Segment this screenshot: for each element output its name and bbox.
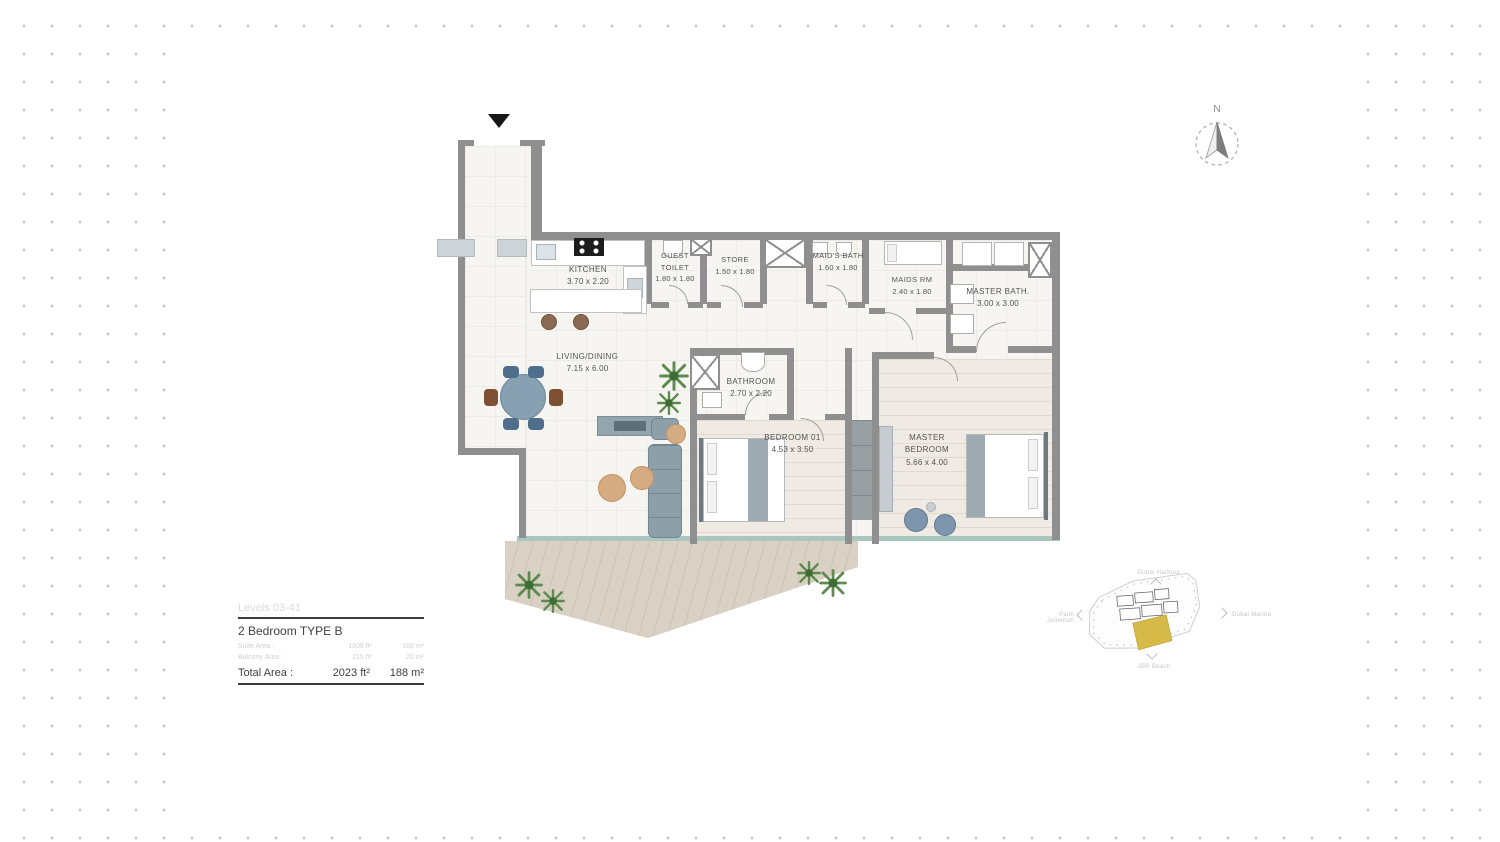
suite-area-row: Suite Area : 1808 ft² 168 m²	[238, 642, 424, 653]
room-dims: 2.40 x 1.80	[878, 286, 946, 298]
balcony-glass-rail	[517, 536, 1060, 541]
suite-area-label: Suite Area :	[238, 642, 310, 653]
total-area-m: 188 m²	[370, 667, 424, 679]
wall	[848, 302, 865, 308]
room-name: BATHROOM	[727, 377, 776, 386]
vanity-sink	[950, 314, 974, 334]
wall	[744, 302, 763, 308]
room-label-bedroom-01: BEDROOM 01 4.53 x 3.50	[745, 432, 840, 457]
room-label-maids-bath: MAID'S BATH 1.60 x 1.80	[812, 250, 864, 273]
room-label-store: STORE 1.50 x 1.80	[709, 254, 761, 277]
wall	[845, 348, 852, 544]
maids-bed-pillow	[887, 244, 897, 262]
room-dims: 3.70 x 2.20	[538, 276, 638, 288]
wall	[651, 302, 669, 308]
side-table	[926, 502, 936, 512]
compass-north-label: N	[1213, 104, 1220, 115]
suite-area-ft: 1808 ft²	[310, 642, 372, 653]
wall	[1052, 240, 1060, 540]
wall	[697, 414, 745, 420]
room-label-kitchen: KITCHEN 3.70 x 2.20	[538, 264, 638, 289]
building-locator: Dubai Harbour Palm Jumeirah Dubai Marina…	[1040, 562, 1280, 682]
room-name: GUEST TOILET	[661, 251, 690, 272]
wall	[458, 140, 465, 455]
locator-label-bottom: JBR Beach	[1124, 664, 1184, 670]
pouf	[598, 474, 626, 502]
room-dims: 1.50 x 1.80	[709, 266, 761, 278]
wall	[872, 352, 934, 359]
unit-type-label: 2 Bedroom TYPE B	[238, 624, 424, 638]
tv-screen	[614, 421, 646, 431]
balcony-area-ft: 215 ft²	[310, 653, 372, 664]
room-label-guest-toilet: GUEST TOILET 1.80 x 1.80	[649, 250, 701, 285]
bed-headboard	[1044, 432, 1048, 520]
kitchen-sink	[536, 244, 556, 260]
wall	[869, 308, 885, 314]
dotted-background: KITCHEN 3.70 x 2.20 GUEST TOILET 1.80 x …	[0, 0, 1500, 842]
wall	[872, 352, 879, 544]
room-dims: 3.00 x 3.00	[962, 298, 1034, 310]
room-name: MASTER BATH.	[966, 287, 1029, 296]
toilet-icon	[741, 352, 765, 372]
divider	[238, 617, 424, 619]
bar-stool	[573, 314, 589, 330]
room-dims: 2.70 x 2.20	[712, 388, 790, 400]
bed-runner	[967, 435, 985, 517]
duct-shaft	[764, 238, 806, 268]
closet	[962, 242, 992, 266]
plant-icon	[658, 360, 690, 392]
wall	[531, 146, 542, 232]
dining-chair	[503, 418, 519, 430]
wall-ledge	[437, 239, 475, 257]
pillow	[1028, 439, 1038, 471]
room-name: LIVING/DINING	[557, 352, 619, 361]
pillow	[707, 481, 717, 513]
suite-area-m: 168 m²	[372, 642, 424, 653]
lounge-chair	[934, 514, 956, 536]
total-area-ft: 2023 ft²	[304, 667, 370, 679]
closet	[994, 242, 1024, 266]
room-name: BEDROOM 01	[764, 433, 820, 442]
wall	[769, 414, 794, 420]
room-name: MAID'S BATH	[812, 251, 863, 260]
plant-icon	[540, 588, 566, 614]
divider	[238, 683, 424, 685]
locator-label-top: Dubai Harbour	[1124, 570, 1194, 576]
room-label-maids-rm: MAIDS RM 2.40 x 1.80	[878, 274, 946, 297]
entry-arrow-icon	[488, 114, 510, 128]
wall	[707, 302, 721, 308]
wall	[813, 302, 827, 308]
dining-chair-wood	[549, 389, 563, 406]
locator-label-left: Palm Jumeirah	[1040, 612, 1074, 624]
cabinet	[497, 239, 527, 257]
room-name: KITCHEN	[569, 265, 607, 274]
compass-needle-dark	[1217, 122, 1228, 158]
pillow	[707, 443, 717, 475]
room-dims: 1.60 x 1.80	[812, 262, 864, 274]
room-dims: 5.66 x 4.00	[887, 457, 967, 469]
room-label-living-dining: LIVING/DINING 7.15 x 6.00	[530, 351, 645, 376]
room-label-master-bath: MASTER BATH. 3.00 x 3.00	[962, 286, 1034, 311]
total-area-label: Total Area :	[238, 667, 304, 679]
wall	[825, 414, 845, 420]
room-dims: 1.80 x 1.80	[649, 273, 701, 285]
bar-stool	[541, 314, 557, 330]
sofa	[648, 444, 682, 538]
wall	[946, 346, 976, 353]
pouf	[630, 466, 654, 490]
room-name: STORE	[721, 255, 749, 264]
plant-icon	[818, 568, 848, 598]
wall	[1008, 346, 1054, 353]
levels-label: Levels 03-41	[238, 602, 424, 614]
wall	[688, 302, 703, 308]
balcony-area-m: 20 m²	[372, 653, 424, 664]
duct-shaft	[1028, 242, 1052, 278]
dining-table	[500, 374, 546, 420]
dining-chair-wood	[484, 389, 498, 406]
pouf	[666, 424, 686, 444]
plant-icon	[656, 390, 682, 416]
floor-plan: KITCHEN 3.70 x 2.20 GUEST TOILET 1.80 x …	[0, 0, 1500, 842]
compass-needle-light	[1206, 122, 1217, 158]
pillow	[1028, 477, 1038, 509]
stove-icon	[574, 238, 604, 256]
room-dims: 4.53 x 3.50	[745, 444, 840, 456]
room-name: MASTER BEDROOM	[905, 433, 949, 454]
balcony-area-label: Balcony Area :	[238, 653, 310, 664]
wardrobe	[852, 420, 872, 520]
room-name: MAIDS RM	[892, 275, 933, 284]
wall	[916, 308, 948, 314]
dining-chair	[503, 366, 519, 378]
wall	[458, 448, 526, 455]
room-dims: 7.15 x 6.00	[530, 363, 645, 375]
room-label-master-bedroom: MASTER BEDROOM 5.66 x 4.00	[887, 432, 967, 469]
room-label-bathroom: BATHROOM 2.70 x 2.20	[712, 376, 790, 401]
kitchen-island	[530, 289, 642, 313]
balcony-area-row: Balcony Area : 215 ft² 20 m²	[238, 653, 424, 664]
compass: N	[1189, 98, 1245, 178]
lounge-chair	[904, 508, 928, 532]
total-area-row: Total Area : 2023 ft² 188 m²	[238, 667, 424, 679]
locator-label-right: Dubai Marina	[1232, 612, 1280, 618]
wall	[519, 448, 526, 538]
dining-chair	[528, 418, 544, 430]
unit-info-box: Levels 03-41 2 Bedroom TYPE B Suite Area…	[238, 602, 424, 685]
